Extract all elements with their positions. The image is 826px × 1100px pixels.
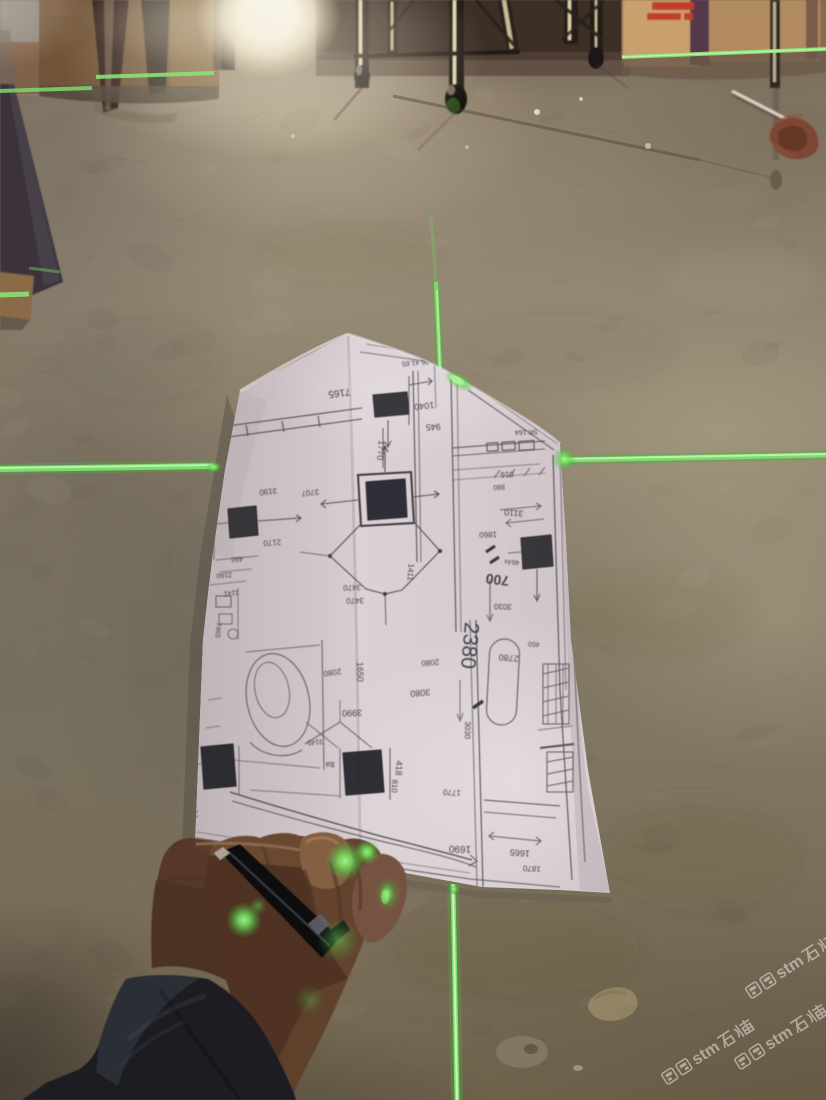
svg-text:3990: 3990	[342, 708, 362, 719]
svg-text:5R 164: 5R 164	[515, 428, 538, 436]
svg-text:1860: 1860	[478, 530, 497, 540]
svg-text:1665: 1665	[509, 847, 530, 858]
svg-text:2780: 2780	[498, 652, 519, 664]
svg-text:480: 480	[231, 554, 243, 562]
svg-text:3030: 3030	[463, 721, 473, 740]
svg-text:810: 810	[390, 779, 399, 793]
svg-text:7465: 7465	[213, 622, 221, 638]
svg-text:3190: 3190	[258, 486, 277, 497]
svg-text:3080: 3080	[410, 687, 431, 699]
svg-text:880: 880	[493, 483, 505, 490]
svg-text:1141: 1141	[223, 588, 239, 596]
svg-text:1411: 1411	[405, 563, 415, 581]
svg-text:1770: 1770	[442, 788, 461, 798]
svg-text:1690: 1690	[448, 843, 471, 854]
svg-text:450: 450	[528, 640, 540, 648]
svg-text:464x: 464x	[504, 557, 520, 565]
svg-text:3707: 3707	[300, 487, 319, 498]
svg-text:3145: 3145	[307, 737, 323, 745]
svg-text:8a: 8a	[325, 760, 335, 770]
svg-text:3470: 3470	[345, 596, 364, 606]
svg-text:1770: 1770	[375, 440, 387, 461]
svg-text:3110: 3110	[504, 507, 524, 518]
svg-text:1650: 1650	[355, 662, 366, 682]
svg-text:700: 700	[485, 571, 510, 590]
svg-text:2160: 2160	[216, 570, 232, 578]
svg-text:1870: 1870	[522, 863, 541, 873]
svg-text:945: 945	[425, 421, 441, 432]
svg-text:1040: 1040	[414, 400, 435, 412]
svg-text:3470: 3470	[342, 583, 361, 593]
svg-text:2080: 2080	[420, 657, 439, 668]
svg-text:2380: 2380	[456, 621, 483, 670]
svg-text:2170: 2170	[262, 537, 281, 547]
svg-text:016: 016	[500, 470, 514, 479]
svg-text:418: 418	[394, 760, 405, 775]
svg-text:3030: 3030	[493, 602, 512, 612]
